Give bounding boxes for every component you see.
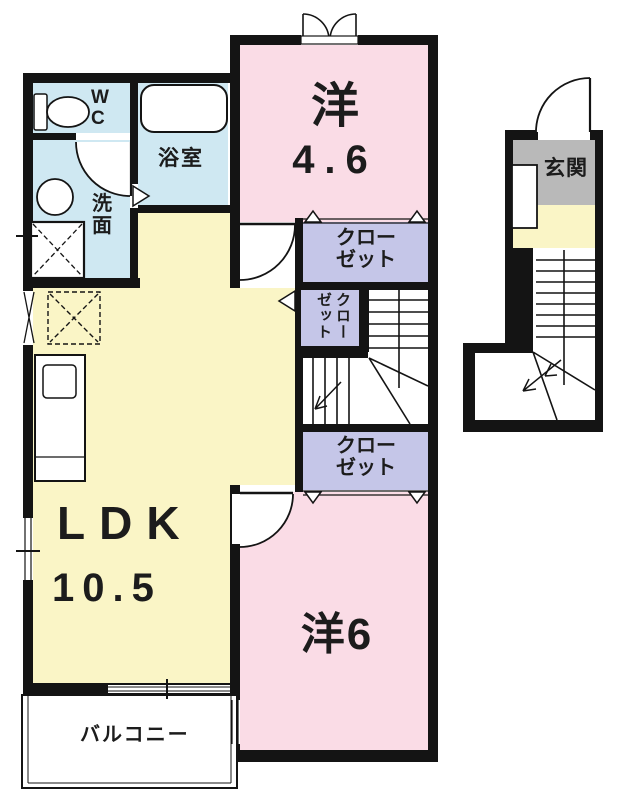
ldk-size-label: 10.5: [52, 566, 162, 611]
western46-door-icon: [240, 224, 295, 280]
closet-hall-label: クローゼット: [308, 292, 352, 344]
balcony-label: バルコニー: [80, 718, 190, 747]
opening-kitchen-louver: [23, 291, 33, 345]
wall-washroom-bottom: [23, 278, 140, 288]
wall-closet-hall-bottom: [295, 346, 368, 358]
wall-western6-bottom: [230, 750, 438, 762]
entrance-label: 玄関: [544, 152, 588, 182]
opening-western46-window: [301, 35, 358, 45]
wall-closet-hall-right: [359, 288, 369, 352]
washroom-label: 洗面: [92, 194, 116, 237]
wall-stairwell-bottomleft: [463, 343, 475, 432]
opening-entry-door: [538, 131, 590, 140]
opening-balcony-slider: [108, 685, 230, 693]
western6-label: 洋6: [283, 598, 391, 662]
ldk-name-label: LDK: [57, 496, 194, 550]
wall-wc-bottom: [33, 133, 78, 140]
western46-size-label: 4.6: [272, 138, 398, 183]
wall-unit-right: [428, 35, 438, 762]
wall-stairwell-right: [595, 130, 603, 432]
wall-stairwell-bottom: [463, 420, 603, 432]
wall-utility-top: [23, 73, 238, 83]
closet-lower-label: クローゼット: [327, 436, 405, 479]
closet-upper-label: クローゼット: [327, 228, 405, 271]
wall-stairwell-topstub: [463, 343, 533, 353]
wall-western46-left: [230, 45, 240, 288]
room-ldk-upper: [33, 288, 295, 485]
wall-closet-hall-left: [295, 288, 301, 352]
opening-western6-window: [230, 700, 240, 744]
opening-wc-door: [76, 133, 130, 140]
wall-closet-lower-left: [295, 432, 303, 492]
wall-bath-bottom: [138, 205, 238, 213]
room-wc: [33, 83, 130, 140]
wall-entrance-left: [505, 130, 513, 248]
stairs-stairwell: [523, 250, 595, 420]
opening-ldk-window: [23, 518, 33, 580]
opening-bath-door: [130, 184, 138, 208]
bathroom-label: 浴室: [158, 142, 204, 172]
wall-left-lower: [23, 288, 33, 695]
wall-closet-lower-top: [295, 424, 438, 432]
wall-closet-upper-left: [295, 218, 303, 290]
western46-name-label: 洋: [299, 66, 371, 136]
hall-corridor: [138, 213, 230, 288]
wall-stair-left: [295, 358, 303, 432]
opening-western6-door: [232, 494, 240, 544]
entry-door-icon: [536, 78, 590, 132]
wall-stairshaft-left: [505, 248, 533, 350]
entrance-floor-hall: [513, 205, 595, 248]
wall-left-upper: [23, 73, 33, 288]
wall-wc-bath-divider: [130, 83, 138, 278]
floorplan-canvas: WC 浴室 洗面 洋 4.6 クローゼット クローゼット クローゼット LDK …: [0, 0, 633, 800]
wc-label: WC: [91, 88, 115, 129]
